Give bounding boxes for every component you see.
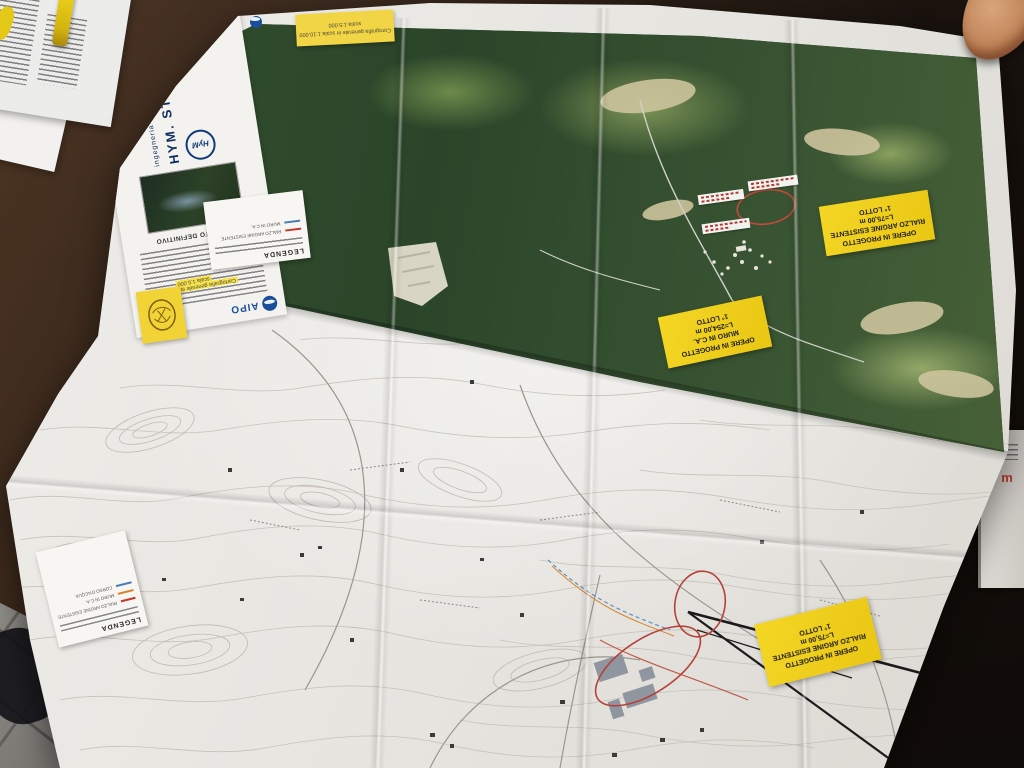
map-sheet: AIPO PROGETTO DEFINITIVO HyM HYM. STUDIO… — [0, 0, 1024, 768]
callout-red-text — [751, 177, 795, 185]
scribble-circle-icon — [142, 294, 181, 336]
aipo-logo-icon — [250, 16, 262, 28]
legend-header-text — [59, 604, 139, 632]
legend-entry-label: MURO IN C.A. — [251, 221, 281, 230]
photo-of-project-map: i m — [0, 0, 1024, 768]
map-callout — [748, 175, 799, 192]
red-highlight-text: i m — [984, 470, 1018, 485]
legend-entry-label: RIALZO ARGINE ESISTENTE — [221, 229, 282, 241]
hym-logo-icon: HyM — [183, 128, 217, 162]
ctr-note: Cartografia generale su base CTR scala 1… — [145, 264, 244, 304]
project-info-text — [140, 234, 268, 310]
designer-logo-row: HyM HYM. STUDIO ingegneria idraulica — [138, 51, 218, 167]
work-label-line: RIALZO ARGINE ESISTENTE — [772, 630, 867, 662]
legend-swatch-orange — [118, 590, 134, 596]
legend-entry: RIALZO ARGINE ESISTENTE — [214, 227, 302, 243]
legend-entry: MURO IN C.A. — [213, 219, 301, 235]
work-label-line: 1° LOTTO — [858, 202, 891, 216]
map-callout — [702, 218, 751, 235]
aipo-margin-logo — [250, 16, 262, 28]
work-label-rialzo-2: OPERE IN PROGETTO RIALZO ARGINE ESISTENT… — [754, 597, 882, 687]
project-phase: PROGETTO DEFINITIVO — [156, 225, 240, 245]
legend-entry-label: MURO IN C.A. — [85, 593, 115, 605]
scale-note-line2: scala 1:5.000 — [328, 19, 361, 29]
work-label-line: 1° LOTTO — [695, 310, 728, 326]
callout-red-text — [751, 183, 780, 189]
callout-red-text — [701, 191, 741, 199]
callout-red-text — [705, 226, 730, 231]
aipo-name: AIPO — [229, 300, 259, 315]
legend-swatch-blue — [116, 582, 132, 588]
company-name: HYM. STUDIO — [151, 57, 183, 165]
document-text-block — [988, 444, 1018, 460]
work-label-rialzo-1: OPERE IN PROGETTO RIALZO ARGINE ESISTENT… — [819, 190, 935, 257]
legend-swatch-red — [121, 597, 136, 603]
work-label-muro: OPERE IN PROGETTO MURO IN C.A. L=254,00 … — [658, 296, 772, 369]
legend-swatch-red — [285, 228, 301, 232]
legend-header-text — [215, 235, 303, 255]
legend-entry-label: CORSO D'ACQUA — [75, 585, 113, 599]
callout-red-text — [701, 197, 729, 203]
aerial-annotations — [0, 0, 1024, 768]
fold-crease — [0, 474, 1021, 568]
scale-sticky-note: Corografia generale in scala 1:10.000 sc… — [295, 9, 395, 46]
company-tagline: ingegneria idraulica — [142, 86, 162, 167]
work-label-line: RIALZO ARGINE ESISTENTE — [830, 216, 926, 240]
callout-red-text — [705, 220, 747, 228]
legend-entry: MURO IN C.A. — [55, 588, 134, 612]
work-label-line: OPERE IN PROGETTO — [680, 333, 755, 358]
legend-title: LEGENDA — [62, 615, 141, 641]
work-label-line: MURO IN C.A. — [692, 327, 739, 346]
finger — [948, 0, 1024, 74]
scale-note-line1: Corografia generale in scala 1:10.000 — [299, 26, 391, 39]
work-label-line: L=75,00 m — [799, 629, 834, 646]
ctr-note-line1: Cartografia generale su base CTR — [151, 276, 238, 297]
legend-title: LEGENDA — [216, 246, 304, 264]
folded-document-right: i m — [978, 430, 1024, 588]
legend-entry: CORSO D'ACQUA — [53, 580, 132, 604]
legend-box-aerial: LEGENDA RIALZO ARGINE ESISTENTE MURO IN … — [203, 190, 311, 270]
legend-entry-label: RIALZO ARGINE ESISTENTE — [57, 600, 117, 620]
work-label-line: L=75,00 m — [859, 211, 894, 226]
aerial-orthophoto — [0, 0, 1024, 768]
legend-swatch-blue — [284, 220, 300, 224]
location-thumbnail-photo — [139, 161, 245, 234]
sheet-overlap-shadow — [260, 298, 1009, 463]
topographic-map — [0, 0, 1024, 768]
fold-crease — [783, 20, 812, 768]
legend-box-topo: LEGENDA RIALZO ARGINE ESISTENTE MURO IN … — [36, 530, 149, 647]
map-sheet-wrapper: AIPO PROGETTO DEFINITIVO HyM HYM. STUDIO… — [0, 0, 1024, 768]
legend-entry: RIALZO ARGINE ESISTENTE — [57, 596, 136, 620]
ctr-note-line2: scala 1:5.000 — [175, 275, 212, 287]
doodle-sticker — [136, 286, 188, 344]
aipo-logo-row: AIPO — [229, 295, 278, 317]
work-label-line: OPERE IN PROGETTO — [784, 642, 859, 669]
fold-crease — [575, 8, 611, 768]
work-label-line: OPERE IN PROGETTO — [842, 226, 917, 247]
map-callout — [698, 189, 745, 205]
work-label-line: 1° LOTTO — [798, 620, 832, 637]
aipo-logo-icon — [261, 295, 278, 312]
fold-crease — [369, 18, 411, 768]
work-label-line: L=254,00 m — [694, 319, 733, 336]
